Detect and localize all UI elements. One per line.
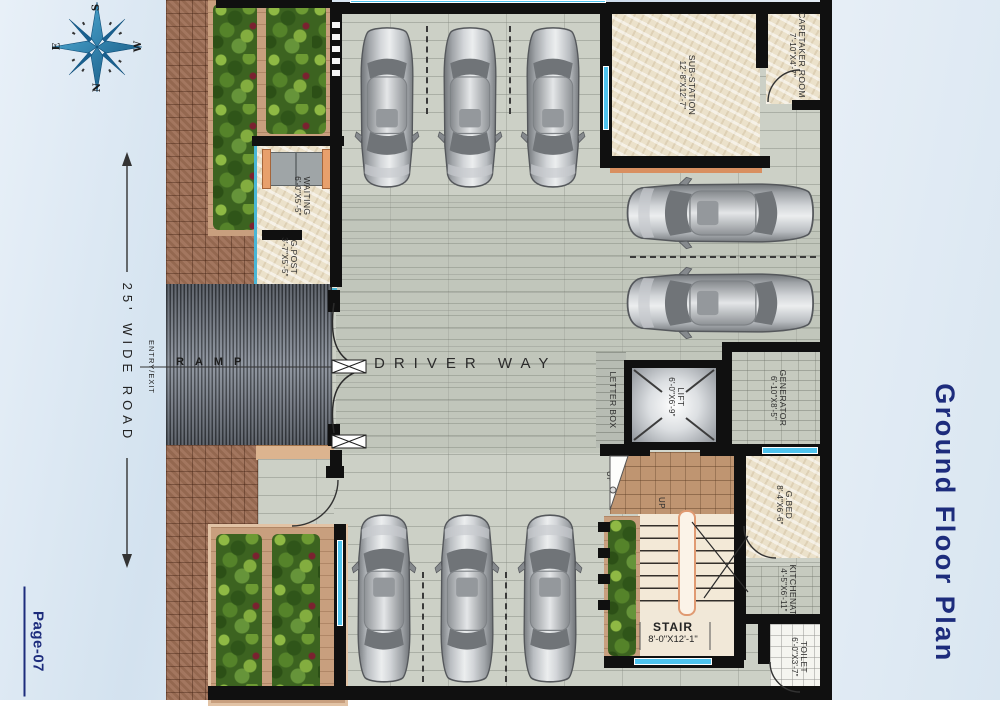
wall-toilet-left (758, 624, 770, 664)
wall-substation-bottom (600, 156, 770, 168)
lift-label: LIFT 6'-0"X6'-9" (662, 362, 686, 432)
room-dims: 6'-0"X6'-9" (666, 362, 676, 432)
wall-generator-left (722, 350, 732, 452)
stair-label: STAIR 8'-0"X12'-1" (613, 620, 733, 645)
room-name: TOILET (799, 622, 809, 692)
page-background: WAITING 6'-0"X5'-5" G.POST 3'-7"X5'-5" S… (0, 0, 1000, 700)
kitchenette-label: KITCHENAT 4'-5"X6'-11" (774, 551, 798, 629)
ramp-label: RAMP (176, 356, 252, 368)
compass-rose-icon (52, 2, 142, 92)
window-marker (337, 540, 343, 626)
driver-way-label: DRIVER WAY (374, 355, 557, 372)
wall-stair-dash (598, 600, 610, 610)
wall-stair-top-right (700, 444, 724, 456)
wall-garden-arc-stub (326, 466, 344, 478)
wall-stair-top-left (600, 444, 650, 456)
sub-station-label: SUB-STATION 12'-8"X12'-7" (673, 35, 697, 135)
stall-divider (422, 572, 424, 682)
garden-bushes (216, 534, 262, 692)
parked-car (624, 265, 820, 341)
letter-box-label: LETTER BOX (604, 361, 618, 439)
bench-post (262, 149, 271, 189)
page-number: Page-07 (24, 587, 47, 697)
parked-car (519, 22, 587, 190)
generator-label: GENERATOR 6'-10"X8'-5" (764, 353, 788, 443)
g-bed-label: G.BED 8'-4"X6'-6" (770, 467, 794, 543)
room-name: G.POST (289, 222, 299, 292)
room-name: STAIR (613, 620, 733, 634)
wall-waiting-top (252, 136, 344, 146)
stall-divider (630, 256, 816, 258)
stair-up-label: UP (600, 466, 614, 488)
room-name: GENERATOR (778, 353, 788, 443)
up-text: UP (604, 466, 614, 488)
compass-west: W (133, 41, 144, 52)
room-dims: 6'-0"X3'-7" (789, 622, 799, 692)
room-name: KITCHENAT (788, 551, 798, 629)
window-marker (350, 0, 606, 3)
wall-stair-dash (598, 574, 610, 584)
wall-gate-stub-top (328, 290, 340, 312)
room-dims: 6'-10"X8'-5" (768, 353, 778, 443)
stall-divider (426, 26, 428, 114)
compass-south: S (91, 4, 102, 11)
wall-kitchen-left (734, 564, 746, 660)
room-name: G.BED (784, 467, 794, 543)
compass-north: N (92, 83, 103, 92)
toilet-label: TOILET 6'-0"X3'-7" (785, 622, 809, 692)
garden-bushes (266, 4, 326, 134)
room-dims: 3'-7"X5'-5" (279, 222, 289, 292)
entry-exit-label: ENTRY/EXIT (144, 332, 156, 402)
parked-car (350, 512, 418, 688)
caretaker-label: CARETAKER ROOM 7'-10"X4'-7" (783, 7, 807, 103)
road-width-label: 25' WIDE ROAD (119, 263, 135, 463)
room-name: CARETAKER ROOM (797, 7, 807, 103)
stair-railing (678, 510, 696, 616)
wall-generator-top (722, 342, 830, 352)
stair-up-label: UP (652, 492, 666, 514)
vent-window-strip (332, 16, 340, 82)
garden-bushes (213, 4, 257, 230)
parked-car (624, 175, 820, 251)
walkway-sill (256, 445, 334, 460)
up-text: UP (656, 492, 666, 514)
g-post-label: G.POST 3'-7"X5'-5" (275, 222, 299, 292)
window-marker (603, 66, 609, 130)
compass (52, 2, 142, 92)
room-dims: 7'-10"X4'-7" (787, 7, 797, 103)
window-marker (762, 447, 818, 454)
wall-gate-stub-bottom (328, 424, 340, 446)
room-dims: 12'-8"X12'-7" (677, 35, 687, 135)
wall-caretaker-divider (756, 4, 768, 68)
room-name: LETTER BOX (608, 361, 618, 439)
compass-east: E (51, 43, 62, 51)
stall-divider (509, 26, 511, 114)
wall-bottom (208, 686, 830, 700)
room-dims: 4'-5"X6'-11" (778, 551, 788, 629)
room-name: SUB-STATION (687, 35, 697, 135)
page-title: Ground Floor Plan (920, 353, 960, 693)
garden-bushes (272, 534, 320, 692)
room-dims: 8'-4"X6'-6" (774, 467, 784, 543)
walkway-tiles (258, 459, 334, 528)
wall-stair-dash (598, 548, 610, 558)
wall-stair-dash (598, 522, 610, 532)
parked-car (436, 22, 504, 190)
stall-divider (505, 572, 507, 682)
parked-car (516, 512, 584, 688)
window-marker (634, 658, 712, 665)
room-dims: 8'-0"X12'-1" (613, 634, 733, 645)
parked-car (353, 22, 421, 190)
stair-landing (610, 452, 736, 514)
room-name: WAITING (302, 156, 312, 236)
parked-car (433, 512, 501, 688)
wall-stair-right (734, 452, 746, 564)
wall-garden-top (216, 0, 332, 8)
room-name: LIFT (676, 362, 686, 432)
